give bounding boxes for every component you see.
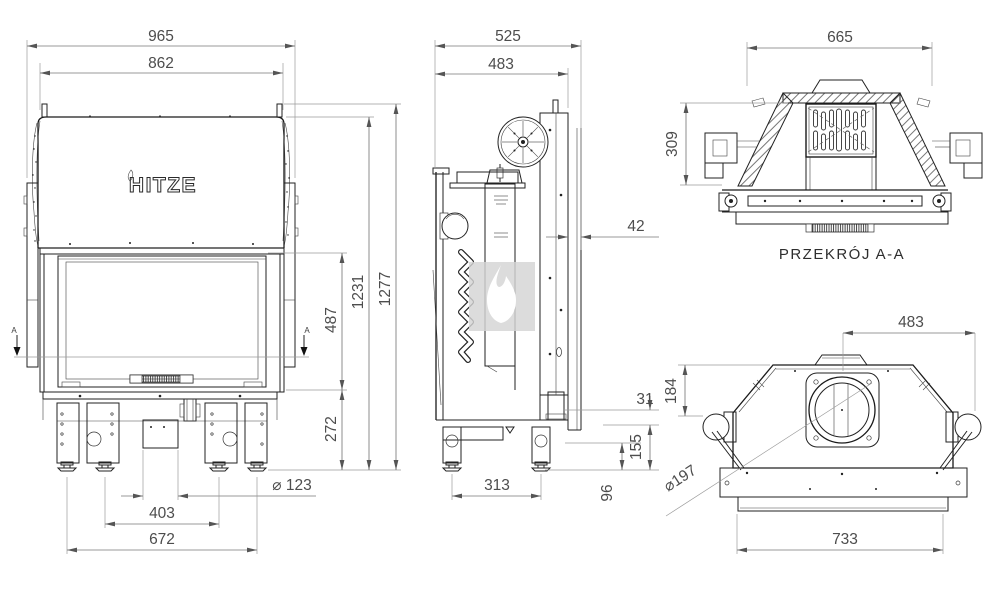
section-marker-left-label: A: [11, 326, 17, 335]
side-top-pin: [553, 100, 558, 113]
flue-collar-top: [815, 355, 867, 365]
leg-plate: [205, 403, 237, 463]
fireplace-technical-drawing: HITZE: [0, 0, 1000, 594]
dim-section-height: 309: [664, 131, 681, 157]
right-side-bracket: [284, 183, 295, 367]
side-air-stub: [442, 213, 468, 239]
leg-plate: [245, 403, 267, 463]
section-caption: PRZEKRÓJ A-A: [779, 246, 905, 263]
front-base: [43, 392, 277, 471]
dim-intake-diameter: ⌀ 123: [272, 477, 312, 494]
dim-intake-height: 96: [599, 484, 616, 501]
right-pulley: [940, 412, 981, 470]
leg-plate: [57, 403, 79, 463]
dim-overall-depth: 525: [495, 28, 521, 45]
dim-flue-center-to-edge: 483: [898, 314, 924, 331]
intake-housing: [143, 420, 178, 448]
left-mount-bracket: [705, 133, 737, 163]
dim-side-feet-spacing: 313: [484, 477, 510, 494]
top-outline: [733, 365, 953, 468]
right-top-pin: [277, 104, 282, 117]
front-dimensions: 965 862 487 272 1231 1277 ⌀ 123 403 672: [27, 28, 401, 554]
rear-intake-pipe: [548, 392, 564, 420]
door-handle: [130, 375, 193, 383]
left-side-bracket: [27, 183, 38, 367]
section-handle: [812, 224, 868, 232]
section-aa-view: 665 309 PRZEKRÓJ A-A: [664, 29, 982, 263]
air-intake-pipe: [184, 399, 196, 421]
left-top-pin: [42, 104, 47, 117]
dim-total-height: 1277: [377, 272, 394, 306]
hitze-flame-watermark: [469, 262, 535, 331]
top-wall: [783, 93, 900, 103]
section-marker-right-label: A: [304, 326, 310, 335]
section-arrow-right: [301, 347, 308, 356]
flue-collar-section: [812, 80, 870, 93]
dim-flue-center-depth: 184: [663, 378, 680, 404]
left-slant-wall: [738, 93, 793, 186]
flue-outlet: [806, 373, 879, 447]
deflector-grate: [806, 104, 876, 157]
door-frame: [58, 256, 266, 387]
dim-body-height: 1231: [350, 275, 367, 309]
dim-body-width: 862: [148, 55, 174, 72]
dim-feet-spacing-inner: 403: [149, 505, 175, 522]
dim-base-width: 733: [832, 531, 858, 548]
top-view: 483 184 ⌀197 733: [661, 314, 981, 554]
top-base: [720, 468, 967, 511]
dim-rear-pipe-offset: 31: [636, 391, 653, 408]
section-aa-base: [719, 190, 951, 232]
side-base: [436, 420, 568, 471]
right-slant-wall: [890, 93, 945, 186]
front-body: HITZE: [11, 104, 310, 471]
side-body: [433, 100, 581, 471]
leg-plate: [87, 403, 119, 463]
dim-glass-height: 487: [323, 307, 340, 333]
front-view: HITZE: [11, 28, 401, 554]
door-glass: [66, 262, 258, 379]
dim-body-depth: 483: [488, 56, 514, 73]
dim-overall-width: 965: [148, 28, 174, 45]
dim-section-width: 665: [827, 29, 853, 46]
technical-drawing-page: HITZE: [0, 0, 1000, 594]
section-cut-a-a: A A: [11, 326, 310, 357]
dim-base-height: 272: [323, 416, 340, 442]
dim-rear-shield-gap: 42: [627, 218, 644, 235]
hitze-logo-text: HITZE: [129, 174, 197, 197]
right-mount-bracket: [950, 133, 982, 163]
left-pulley: [703, 412, 744, 470]
side-view: 525 483 42 31 155 96 313: [433, 28, 659, 502]
hitze-logo: HITZE: [128, 170, 197, 197]
top-body: [703, 355, 981, 511]
dim-rear-clearance: 155: [628, 434, 645, 460]
dim-flue-diameter: ⌀197: [661, 462, 700, 495]
front-window: [40, 254, 284, 392]
section-arrow-left: [14, 347, 21, 356]
dim-feet-spacing-outer: 672: [149, 531, 175, 548]
